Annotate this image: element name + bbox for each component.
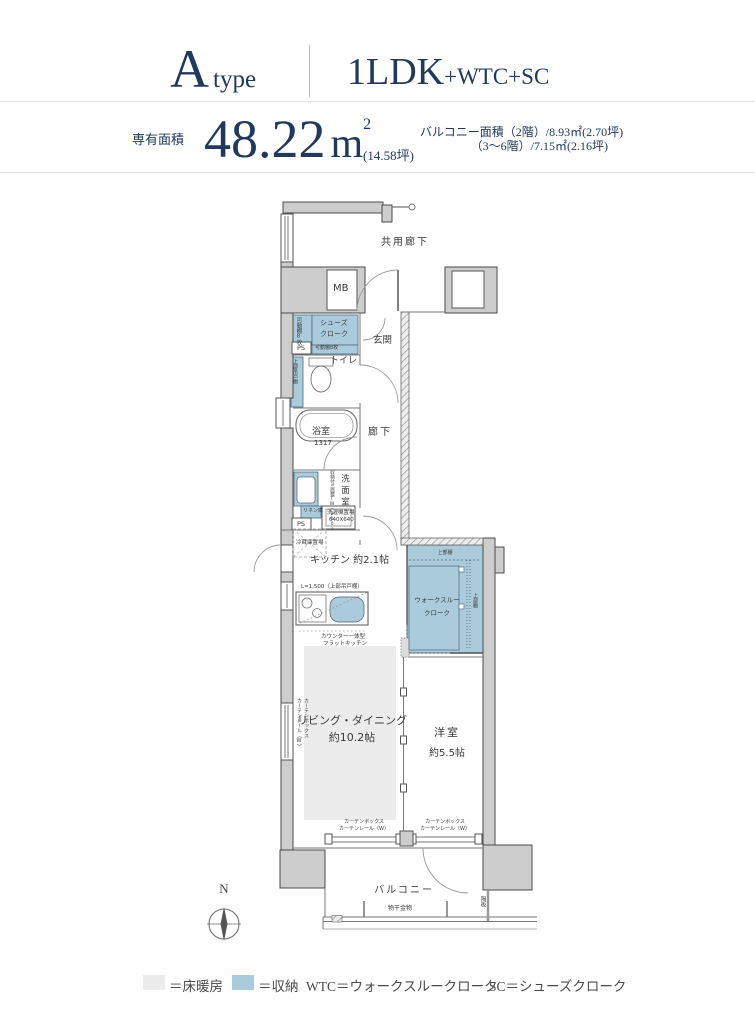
- label-kitchen-shelf: L=1,500（上部吊戸棚）: [301, 585, 363, 591]
- toilet-bowl: [311, 366, 331, 392]
- washroom-door-arc: [363, 516, 397, 550]
- label-compass-n: N: [219, 882, 228, 895]
- label-flat-kitchen-1: カウンター一体型: [321, 635, 365, 641]
- label-drying-fixture: 物干金物: [388, 906, 412, 912]
- legend-storage: ＝収納: [258, 975, 299, 995]
- label-partition-board: 隔板: [479, 896, 485, 907]
- toilet-door-arc: [360, 365, 398, 403]
- label-curtain-box-v: カーテンボックス: [303, 698, 308, 738]
- label-living-2: 約10.2帖: [329, 732, 376, 743]
- label-toilet: トイレ: [330, 357, 357, 366]
- label-curtain-box1-1: カーテンボックス: [344, 820, 384, 825]
- label-ps-mid: PS: [297, 521, 305, 528]
- label-bedroom-size: 約5.5帖: [429, 749, 465, 759]
- label-balcony: バルコニー: [374, 886, 434, 896]
- corridor-window: [281, 214, 293, 262]
- label-corridor: 廊下: [368, 428, 392, 438]
- vanity-bowl: [297, 477, 315, 503]
- legend-floor-heating-swatch: [143, 975, 165, 990]
- compass: [207, 907, 241, 941]
- legend-wtc: WTC＝ウォークスルークローク: [306, 975, 498, 995]
- alcove-box: [452, 271, 484, 308]
- label-curtain-box2-1: カーテンボックス: [425, 820, 465, 825]
- floor-plan-svg: [0, 0, 755, 1022]
- stove: [299, 595, 326, 622]
- window-pillar: [400, 831, 413, 846]
- label-bath: 浴室: [312, 428, 330, 437]
- label-ps-top: PS: [297, 345, 305, 352]
- label-wtc-1: ウォークスルー: [414, 597, 459, 604]
- label-movable-shelf-side: 可動棚8枚: [295, 317, 301, 345]
- label-shoes-closet-2: クローク: [320, 331, 348, 338]
- label-curtain-rail-v: カーテンレール（W）: [296, 698, 301, 749]
- compass-needle: [221, 907, 228, 941]
- label-washer-1: 洗濯機置場: [327, 511, 355, 517]
- label-mb: MB: [333, 284, 349, 294]
- living-window: [281, 703, 293, 760]
- label-washroom: 洗面室: [340, 474, 349, 509]
- label-washer-2: 640X640: [329, 518, 354, 524]
- side-door-arc: [254, 545, 281, 572]
- door-closer: [392, 204, 415, 210]
- label-common-corridor: 共用廊下: [381, 238, 429, 248]
- label-movable-shelf-bottom: 可動棚8枚: [315, 346, 338, 351]
- label-hanging-cabinet: 上部吊戸棚: [292, 359, 297, 384]
- label-shoes-closet-1: シューズ: [320, 320, 348, 327]
- legend-storage-swatch: [232, 975, 254, 990]
- label-flat-kitchen-2: フラットキッチン: [323, 642, 367, 648]
- kitchen-sink: [330, 597, 364, 622]
- hatched-walls: [401, 312, 483, 545]
- label-curtain-box1-2: カーテンレール（W）: [339, 827, 389, 832]
- label-linen: リネン庫: [303, 509, 323, 514]
- label-kitchen: キッチン 約2.1帖: [310, 556, 389, 566]
- floorplan-page: Atype 1LDK+WTC+SC 専有面積 48.22m2 (14.58坪) …: [0, 0, 755, 1022]
- label-entrance: 玄関: [373, 336, 392, 346]
- label-wtc-shelf-right: 上部棚: [472, 593, 477, 608]
- label-wtc-2: クローク: [424, 610, 450, 617]
- label-wtc-shelf-top: 上部棚: [437, 551, 452, 556]
- label-bedroom: 洋室: [434, 727, 460, 738]
- label-fridge: 冷蔵庫置場: [296, 541, 324, 547]
- label-curtain-box2-2: カーテンレール（W）: [420, 827, 470, 832]
- side-door: [281, 545, 293, 572]
- label-living-1: リビング・ダイニング: [297, 715, 407, 726]
- legend-floor-heating: ＝床暖房: [169, 975, 223, 995]
- label-bath-size: 1317: [314, 440, 332, 447]
- legend-sc: SC＝シューズクローク: [489, 975, 626, 995]
